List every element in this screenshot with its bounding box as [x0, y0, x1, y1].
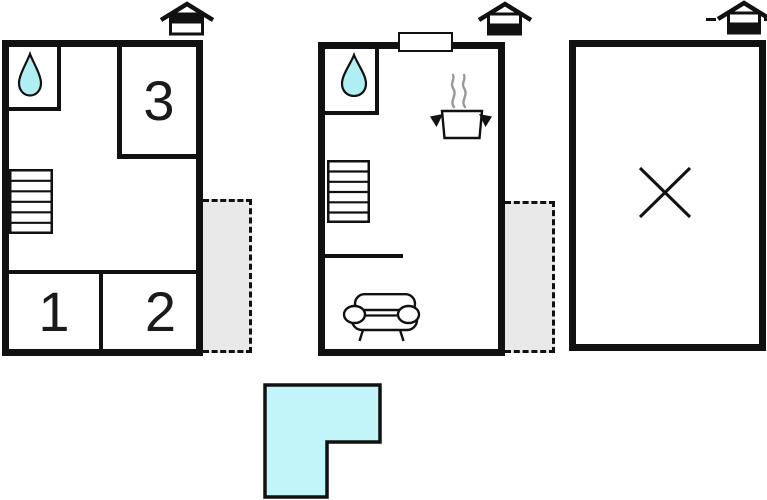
water-drop-icon — [340, 53, 368, 98]
room-2-label: 2 — [114, 274, 207, 349]
bathroom-wall-horizontal — [9, 107, 61, 111]
house-orientation-icon-left — [158, 1, 214, 39]
terrace-middle-unit — [505, 201, 555, 353]
house-orientation-icon-right — [706, 0, 767, 38]
unit-left-floorplan: 3 1 2 — [2, 40, 203, 356]
water-drop-icon — [17, 52, 43, 98]
terrace-left-unit — [203, 199, 252, 353]
cooking-pot-icon — [428, 72, 494, 140]
pot-handle — [430, 114, 443, 127]
house-black-half-bottom — [487, 24, 522, 36]
bathroom-wall-vertical — [375, 49, 379, 115]
room-3-label: 3 — [122, 47, 196, 154]
house-black-half-top — [169, 13, 204, 24]
steam-line — [463, 75, 466, 107]
house-orientation-icon-middle — [476, 1, 532, 39]
pot-body — [442, 111, 482, 138]
house-black-half-bottom — [727, 23, 761, 35]
ground-plan-footprint — [263, 383, 383, 500]
sofa-icon — [343, 293, 420, 342]
room3-wall-horizontal — [117, 154, 196, 159]
rooms-12-divider-wall — [99, 274, 103, 349]
steam-line — [452, 75, 455, 107]
living-room-wall-horizontal — [325, 254, 403, 258]
unit-middle-floorplan — [318, 42, 505, 356]
stairs-icon — [9, 169, 53, 234]
bathroom-wall-horizontal — [325, 111, 379, 115]
floor-plan-image: 3 1 2 — [0, 0, 767, 500]
stairs-icon — [327, 160, 370, 223]
room-1-label: 1 — [9, 274, 99, 349]
bathroom-wall-vertical — [57, 47, 61, 111]
window-opening — [398, 32, 453, 52]
x-room-marker-icon — [639, 167, 691, 218]
